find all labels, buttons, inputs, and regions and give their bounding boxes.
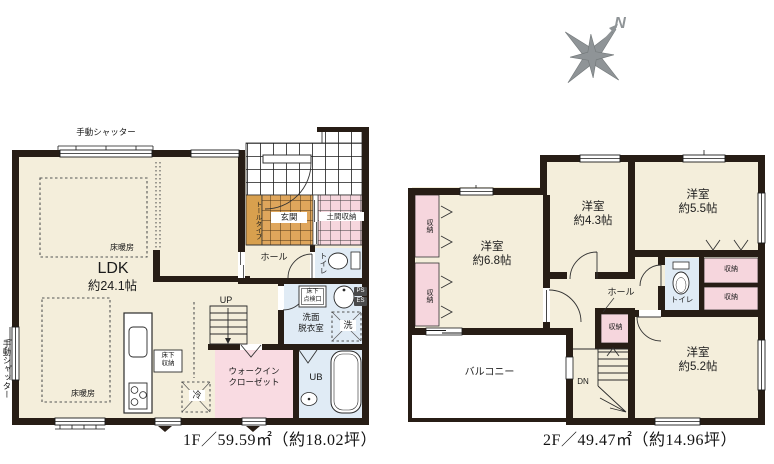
- ldk-size: 約24.1帖: [70, 279, 155, 295]
- laundry-label: 洗: [340, 320, 356, 331]
- balcony-rail-left: [408, 332, 412, 422]
- toilet-tank: [673, 262, 689, 269]
- stairs-down-label: DN: [571, 377, 595, 387]
- tall-cabinet-label: トールタイプ: [249, 198, 260, 243]
- stairs-up-label: UP: [211, 295, 241, 306]
- room-6-8-label: 洋室 約6.8帖: [447, 240, 537, 269]
- front-door-leaf: [263, 155, 311, 163]
- storage-b-label: 収納: [421, 277, 433, 315]
- toilet-bowl: [673, 272, 689, 294]
- storage-a-label: 収納: [421, 207, 433, 245]
- floor2-fixtures: [673, 262, 689, 294]
- fridge-label: 冷: [189, 390, 205, 401]
- hall-2f-label: ホール: [598, 287, 644, 298]
- shutter-label-top: 手動シャッター: [50, 127, 162, 138]
- room-5-5-label: 洋室 約5.5帖: [655, 188, 741, 217]
- room-5-2-label: 洋室 約5.2帖: [655, 346, 741, 375]
- doma-storage-label: 土間収納: [319, 212, 364, 221]
- balcony-slider: [426, 328, 462, 335]
- toilet-tank: [351, 252, 360, 269]
- unit-bath-label: UB: [302, 372, 330, 384]
- washroom-label: 洗面 脱衣室: [288, 312, 334, 333]
- ldk-name: LDK: [88, 259, 138, 279]
- room-4-3-label: 洋室 約4.3帖: [550, 200, 636, 229]
- es-badge: ES: [354, 297, 367, 306]
- hall-1f-label: ホール: [253, 252, 295, 263]
- shutter-label-left: 手動シャッター: [0, 330, 11, 408]
- floor1-area-caption: 1F／59.59㎡（約18.02坪）: [130, 431, 430, 451]
- bathtub: [331, 351, 361, 413]
- toilet-2f-label: トイレ: [666, 295, 698, 304]
- floor-heating-label-2: 床暖房: [60, 389, 106, 399]
- floor2-area-caption: 2F／49.47㎡（約14.96坪）: [490, 431, 774, 451]
- floorplan-canvas: [0, 0, 774, 464]
- wic-label: ウォークイン クローゼット: [215, 366, 293, 387]
- storage-e-label: 収納: [599, 324, 632, 333]
- toilet-bowl: [329, 253, 348, 269]
- kitchen-sink: [129, 327, 147, 357]
- floor1-plan: [10, 127, 369, 432]
- storage-c-label: 収納: [705, 266, 757, 275]
- inspection-hatch-label: 床下 点検口: [300, 289, 325, 304]
- floorplan-image: N 手動シャッター 手動シャッター LDK 約24.1帖 床暖房 床暖房 玄関 …: [0, 0, 774, 464]
- balcony-rail-bottom: [408, 418, 568, 422]
- compass-north-label: N: [610, 14, 630, 34]
- entrance-label: 玄関: [271, 212, 307, 223]
- ps-badge: PS: [354, 287, 367, 296]
- balcony-label: バルコニー: [452, 367, 527, 380]
- floor-heating-label-1: 床暖房: [99, 243, 145, 253]
- storage-d-label: 収納: [705, 294, 757, 303]
- underfloor-storage-label: 床下 収納: [155, 352, 181, 368]
- toilet-1f-label: トイレ: [317, 250, 327, 277]
- window: [566, 357, 573, 379]
